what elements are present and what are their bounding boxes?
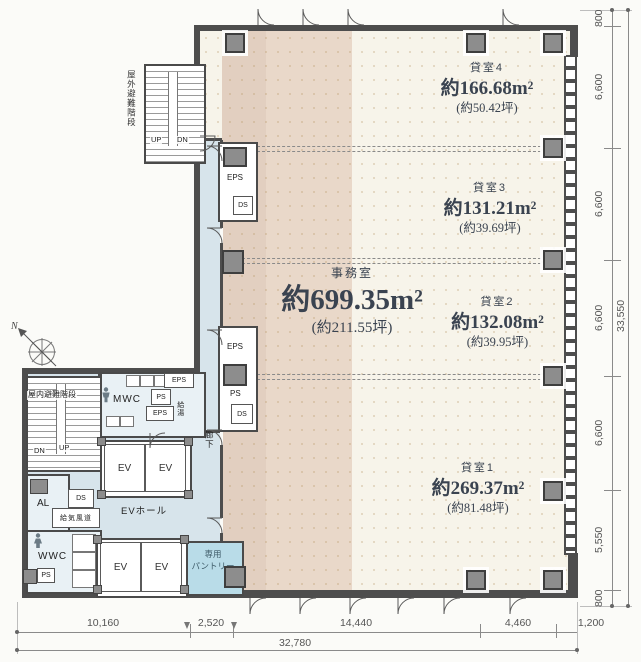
unit4-label: 貸室4 約166.68m² (約50.42坪) (407, 60, 567, 118)
unit1-tsubo: (約81.48坪) (398, 500, 558, 518)
unit2-tsubo: (約39.95坪) (420, 334, 575, 352)
unit4-name: 貸室4 (407, 60, 567, 78)
unit3-label: 貸室3 約131.21m² (約39.69坪) (410, 180, 570, 238)
unit2-label: 貸室2 約132.08m² (約39.95坪) (420, 294, 575, 352)
unit3-name: 貸室3 (410, 180, 570, 198)
unit4-tsubo: (約50.42坪) (407, 100, 567, 118)
unit2-area: 約132.08m² (420, 312, 575, 335)
unit1-name: 貸室1 (398, 460, 558, 478)
office-name: 事務室 (252, 264, 452, 283)
compass-rose: N (10, 318, 66, 374)
unit1-area: 約269.37m² (398, 478, 558, 501)
north-label: N (10, 321, 19, 332)
unit2-name: 貸室2 (420, 294, 575, 312)
floor-plan: EPS DS EPS PS DS UP DN 屋外避難階段 屋内避難階段 DN … (0, 0, 641, 662)
unit1-label: 貸室1 約269.37m² (約81.48坪) (398, 460, 558, 518)
unit3-area: 約131.21m² (410, 198, 570, 221)
unit4-area: 約166.68m² (407, 78, 567, 101)
unit3-tsubo: (約39.69坪) (410, 220, 570, 238)
